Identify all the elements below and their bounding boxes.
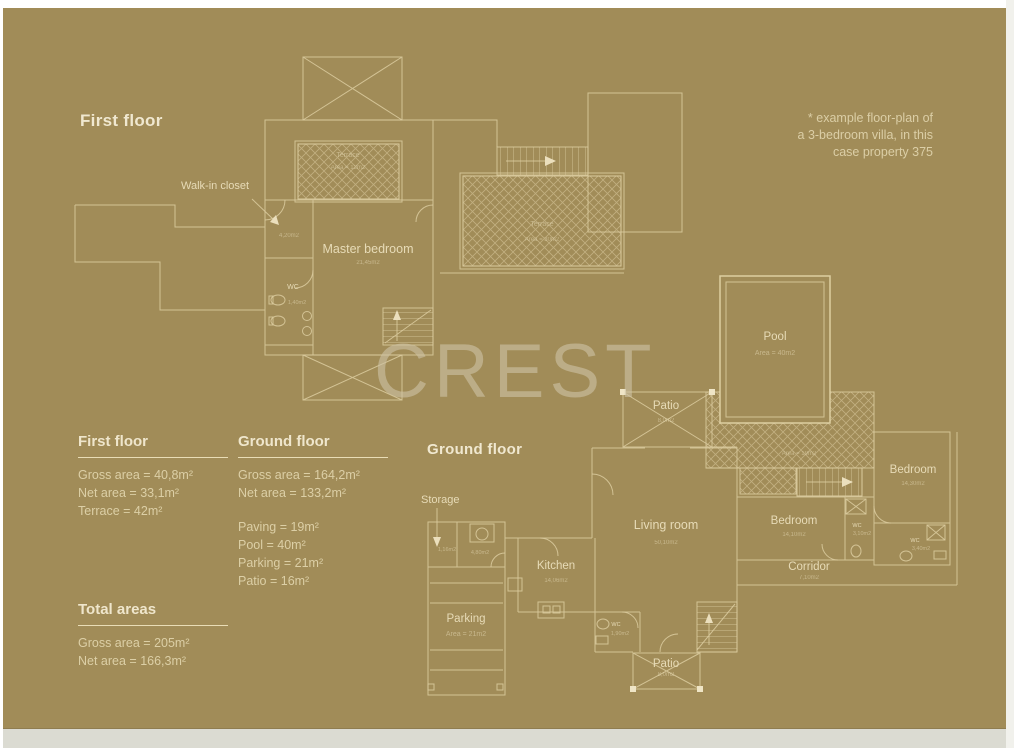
storage-label: Storage bbox=[421, 494, 460, 506]
wc-right-fixtures bbox=[900, 525, 946, 561]
ground-floor-stats: Ground floor Gross area = 164,2m² Net ar… bbox=[238, 433, 388, 590]
pool-label: Pool bbox=[763, 331, 786, 344]
wc-patio-fixtures bbox=[596, 619, 609, 644]
pool-area-label: Area = 40m2 bbox=[755, 350, 795, 358]
paving-area-label: Area = 19m2 bbox=[782, 451, 817, 458]
wc-right-area-label: 3,40m2 bbox=[912, 546, 930, 552]
terrace-small-area-label: Area = 12m2 bbox=[331, 165, 366, 172]
parking-stripes bbox=[430, 583, 503, 670]
ground-floor-title: Ground floor bbox=[427, 442, 522, 459]
stat-row: Gross area = 40,8m² bbox=[78, 466, 228, 484]
stat-row: Paving = 19m² bbox=[238, 518, 388, 536]
terrace-small-label: Terrace bbox=[336, 152, 359, 160]
stat-row: Parking = 21m² bbox=[238, 554, 388, 572]
patio-bottom-label: Patio bbox=[653, 658, 679, 671]
patio-top-area-label: 8,0m2 bbox=[658, 418, 675, 425]
living-room-label: Living room bbox=[634, 519, 699, 533]
storage-b-area-label: 4,80m2 bbox=[471, 550, 489, 556]
stairs-ground-floor bbox=[697, 602, 737, 652]
corridor-area-label: 7,10m2 bbox=[799, 575, 819, 582]
patio-top-label: Patio bbox=[653, 400, 679, 413]
footnote-line-3: case property 375 bbox=[778, 144, 933, 161]
total-areas-title: Total areas bbox=[78, 601, 228, 626]
master-bedroom-area-label: 21,45m2 bbox=[356, 260, 379, 267]
wc-patio-label: WC bbox=[611, 622, 620, 628]
stat-row: Net area = 133,2m² bbox=[238, 484, 388, 502]
footnote: * example floor-plan of a 3-bedroom vill… bbox=[778, 110, 933, 161]
stat-row: Patio = 16m² bbox=[238, 572, 388, 590]
living-room-area-label: 50,10m2 bbox=[654, 540, 677, 547]
stairs-terrace bbox=[497, 147, 588, 175]
stats-spacer bbox=[238, 502, 388, 518]
bedroom-mid-area-label: 14,10m2 bbox=[782, 532, 805, 539]
pergola-top bbox=[303, 57, 402, 120]
stat-row: Gross area = 164,2m² bbox=[238, 466, 388, 484]
storage-a-area-label: 1,16m2 bbox=[438, 547, 456, 553]
stat-row: Net area = 166,3m² bbox=[78, 652, 228, 670]
master-bedroom-label: Master bedroom bbox=[322, 243, 413, 257]
patio-bottom-area-label: 8,0m2 bbox=[658, 672, 675, 679]
corridor-label: Corridor bbox=[788, 561, 830, 574]
footnote-line-1: * example floor-plan of bbox=[778, 110, 933, 127]
terrace-large-area-label: Area = 30m2 bbox=[525, 237, 560, 244]
total-areas-stats: Total areas Gross area = 205m² Net area … bbox=[78, 601, 228, 670]
first-floor-title: First floor bbox=[80, 112, 163, 131]
closet-area-label: 4,20m2 bbox=[279, 233, 299, 240]
first-floor-stats-title: First floor bbox=[78, 433, 228, 458]
bedroom-mid-label: Bedroom bbox=[771, 515, 818, 528]
walk-in-closet-label: Walk-in closet bbox=[181, 180, 249, 192]
wc-label: WC bbox=[287, 284, 299, 292]
storage-arrow-icon bbox=[433, 508, 441, 547]
wc-area-label: 1,40m2 bbox=[288, 300, 306, 306]
kitchen-area-label: 14,06m2 bbox=[544, 578, 567, 585]
wc-mid-area-label: 3,10m2 bbox=[853, 531, 871, 537]
bedroom-right-label: Bedroom bbox=[890, 464, 937, 477]
footnote-line-2: a 3-bedroom villa, in this bbox=[778, 127, 933, 144]
floor-plan-page: CREST First floor Ground floor * example… bbox=[0, 0, 1014, 748]
crest-watermark: CREST bbox=[374, 328, 657, 415]
parking-area-label: Area = 21m2 bbox=[446, 631, 486, 639]
wc-right-label: WC bbox=[910, 538, 919, 544]
kitchen-label: Kitchen bbox=[537, 560, 575, 573]
bedroom-right-area-label: 14,30m2 bbox=[901, 481, 924, 488]
stat-row: Gross area = 205m² bbox=[78, 634, 228, 652]
washing-machine-icon bbox=[470, 524, 494, 542]
first-floor-stats: First floor Gross area = 40,8m² Net area… bbox=[78, 433, 228, 520]
parking-label: Parking bbox=[447, 613, 486, 626]
ground-floor-stats-title: Ground floor bbox=[238, 433, 388, 458]
wc-patio-area-label: 1,90m2 bbox=[611, 631, 629, 637]
stat-row: Net area = 33,1m² bbox=[78, 484, 228, 502]
wc-mid-label: WC bbox=[852, 523, 861, 529]
stat-row: Pool = 40m² bbox=[238, 536, 388, 554]
terrace-large-label: Terrace bbox=[530, 221, 553, 229]
stat-row: Terrace = 42m² bbox=[78, 502, 228, 520]
stairs-paving bbox=[797, 468, 862, 496]
